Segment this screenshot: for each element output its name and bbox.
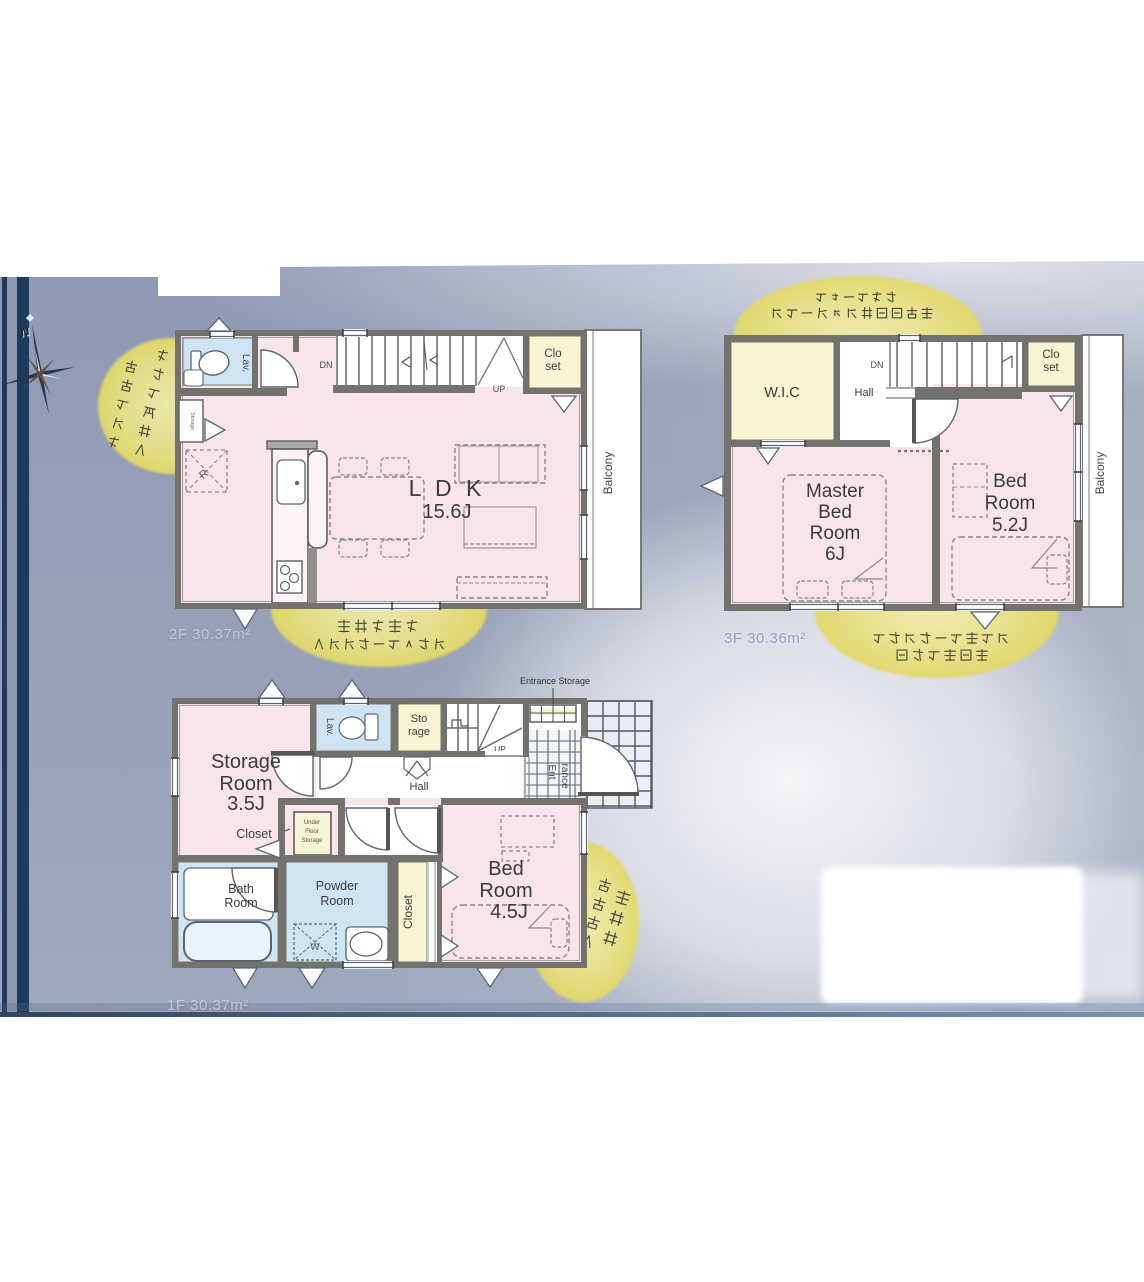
svg-text:DN: DN [871, 360, 884, 370]
svg-text:Ent: Ent [546, 764, 557, 779]
svg-text:Room: Room [479, 880, 532, 902]
svg-text:UP: UP [493, 384, 506, 394]
svg-text:Room: Room [219, 773, 272, 795]
svg-text:Room: Room [810, 523, 861, 544]
svg-text:Entrance Storage: Entrance Storage [520, 676, 590, 686]
svg-text:set: set [545, 361, 561, 373]
svg-text:Bath: Bath [228, 882, 254, 896]
svg-text:Hall: Hall [410, 781, 429, 793]
svg-text:Powder: Powder [316, 879, 358, 893]
svg-text:Closet: Closet [236, 827, 272, 841]
svg-text:Balcony: Balcony [601, 452, 615, 495]
svg-text:Balcony: Balcony [1093, 452, 1107, 495]
svg-text:Storage: Storage [211, 751, 281, 773]
svg-text:Room: Room [224, 896, 257, 910]
svg-text:15.6J: 15.6J [423, 501, 472, 523]
svg-text:L D K: L D K [409, 475, 486, 501]
svg-text:Storage: Storage [301, 838, 323, 844]
svg-text:set: set [1043, 362, 1059, 374]
svg-text:5.2J: 5.2J [992, 515, 1028, 536]
svg-text:Bed: Bed [488, 858, 524, 880]
svg-text:rance: rance [559, 763, 570, 788]
svg-text:Room: Room [320, 894, 353, 908]
svg-text:3.5J: 3.5J [227, 793, 265, 815]
svg-text:N: N [19, 324, 31, 340]
svg-text:Lav.: Lav. [324, 718, 335, 736]
svg-text:Sto: Sto [411, 713, 428, 725]
svg-text:Bed: Bed [993, 471, 1027, 492]
svg-text:Bed: Bed [818, 502, 852, 523]
svg-text:DN: DN [320, 360, 333, 370]
svg-text:Hall: Hall [855, 387, 874, 399]
svg-text:4.5J: 4.5J [490, 901, 528, 923]
svg-text:Storage: Storage [189, 412, 195, 430]
svg-text:6J: 6J [825, 544, 845, 565]
svg-text:W.I.C: W.I.C [764, 385, 799, 401]
svg-text:Room: Room [985, 493, 1036, 514]
svg-text:rage: rage [408, 726, 430, 738]
svg-text:Closet: Closet [401, 894, 415, 929]
svg-text:Under: Under [304, 820, 320, 826]
svg-text:Clo: Clo [544, 348, 561, 360]
svg-text:Lav.: Lav. [240, 354, 251, 372]
svg-text:Master: Master [806, 481, 865, 502]
svg-text:Clo: Clo [1042, 349, 1059, 361]
svg-text:W: W [310, 942, 320, 953]
svg-text:Floor: Floor [305, 829, 319, 835]
